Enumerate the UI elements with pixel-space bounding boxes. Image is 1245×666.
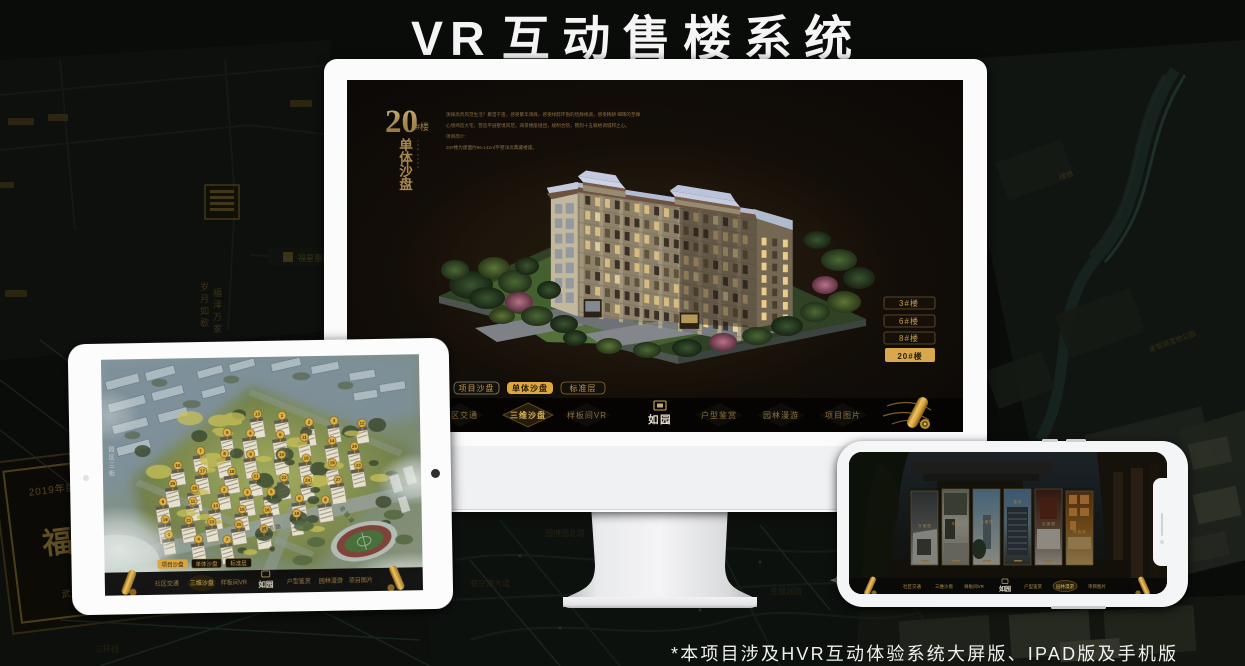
- svg-text:8#楼: 8#楼: [899, 333, 919, 343]
- svg-text:23: 23: [356, 463, 362, 468]
- svg-text:E: E: [417, 147, 419, 151]
- svg-text:20: 20: [352, 444, 358, 449]
- svg-text:27: 27: [336, 477, 342, 482]
- svg-text:样板间VR: 样板间VR: [567, 410, 607, 420]
- svg-text:区: 区: [109, 455, 115, 462]
- svg-text:24: 24: [305, 478, 311, 483]
- svg-text:项目图片: 项目图片: [1088, 583, 1106, 590]
- svg-text:18: 18: [294, 511, 300, 516]
- svg-text:25: 25: [236, 522, 242, 527]
- svg-text:项目简介：: 项目简介：: [446, 133, 469, 140]
- svg-text:三环线: 三环线: [95, 644, 119, 654]
- svg-text:项目沙盘: 项目沙盘: [459, 383, 495, 393]
- svg-text:园: 园: [108, 447, 114, 454]
- svg-text:25: 25: [170, 481, 176, 486]
- svg-text:标准层: 标准层: [570, 383, 597, 393]
- svg-text:如园: 如园: [999, 585, 1011, 593]
- svg-text:21: 21: [253, 474, 259, 479]
- svg-text:13: 13: [213, 503, 219, 508]
- svg-text:20: 20: [385, 104, 418, 140]
- svg-text:20#楼为建面约96-142㎡平墅洋房典藏楼座。: 20#楼为建面约96-142㎡平墅洋房典藏楼座。: [446, 144, 537, 151]
- svg-text:园林漫游: 园林漫游: [763, 410, 799, 420]
- svg-text:街: 街: [109, 470, 115, 478]
- svg-text:21: 21: [186, 518, 192, 523]
- svg-text:12: 12: [360, 421, 366, 426]
- svg-text:23: 23: [209, 519, 215, 524]
- svg-text:盘: 盘: [399, 176, 413, 192]
- svg-text:如: 如: [200, 305, 209, 316]
- svg-text:户型鉴赏: 户型鉴赏: [1024, 583, 1042, 590]
- svg-text:单体沙盘: 单体沙盘: [512, 383, 548, 393]
- svg-text:16: 16: [175, 463, 181, 468]
- svg-text:园林漫游: 园林漫游: [1056, 583, 1074, 590]
- svg-text:标准层: 标准层: [230, 559, 247, 567]
- svg-text:11: 11: [190, 499, 195, 504]
- svg-text:#楼: #楼: [415, 121, 429, 132]
- svg-text:户型鉴赏: 户型鉴赏: [701, 410, 737, 420]
- svg-text:样板间VR: 样板间VR: [964, 583, 985, 590]
- svg-text:演绎高贵风范生活？聚首千亩，感受繁华演绎，感受绿醉环抱的恬静: 演绎高贵风范生活？聚首千亩，感受繁华演绎，感受绿醉环抱的恬静格调，感受精耕 细琢…: [446, 111, 641, 118]
- svg-text:家: 家: [213, 323, 222, 334]
- svg-text:3#楼: 3#楼: [899, 298, 919, 308]
- svg-text:18: 18: [229, 469, 235, 474]
- svg-text:22: 22: [281, 475, 287, 480]
- svg-text:月: 月: [200, 294, 209, 304]
- svg-text:心境缔造大宅，营造平层墅境风范，阔景楼座组团，规制合院，镌刻: 心境缔造大宅，营造平层墅境风范，阔景楼座组团，规制合院，镌刻十五载格调城邦之心。: [446, 122, 630, 129]
- svg-text:10: 10: [279, 452, 285, 457]
- svg-text:17: 17: [200, 469, 206, 474]
- svg-text:万: 万: [213, 312, 222, 322]
- svg-text:19: 19: [330, 460, 336, 465]
- svg-text:26: 26: [192, 486, 198, 491]
- svg-text:14: 14: [329, 438, 335, 443]
- svg-text:歌: 歌: [200, 317, 209, 328]
- svg-text:13: 13: [255, 412, 261, 417]
- svg-text:项目图片: 项目图片: [825, 410, 861, 420]
- svg-text:11: 11: [302, 435, 307, 440]
- svg-text:社区交通: 社区交通: [903, 583, 921, 590]
- svg-text:6#楼: 6#楼: [899, 316, 919, 326]
- svg-text:福: 福: [213, 287, 222, 298]
- svg-text:15: 15: [304, 456, 310, 461]
- svg-text:16: 16: [265, 507, 271, 512]
- svg-text:如园: 如园: [648, 413, 672, 426]
- svg-text:三维沙盘: 三维沙盘: [935, 583, 953, 590]
- svg-text:三: 三: [109, 463, 115, 470]
- svg-text:20#楼: 20#楼: [897, 351, 922, 361]
- svg-text:临空港大道: 临空港大道: [470, 578, 510, 588]
- svg-text:15: 15: [240, 507, 246, 512]
- svg-text:如园: 如园: [258, 579, 274, 589]
- svg-text:三维沙盘: 三维沙盘: [510, 410, 546, 420]
- svg-text:岁: 岁: [200, 281, 209, 292]
- svg-text:泽: 泽: [213, 300, 222, 310]
